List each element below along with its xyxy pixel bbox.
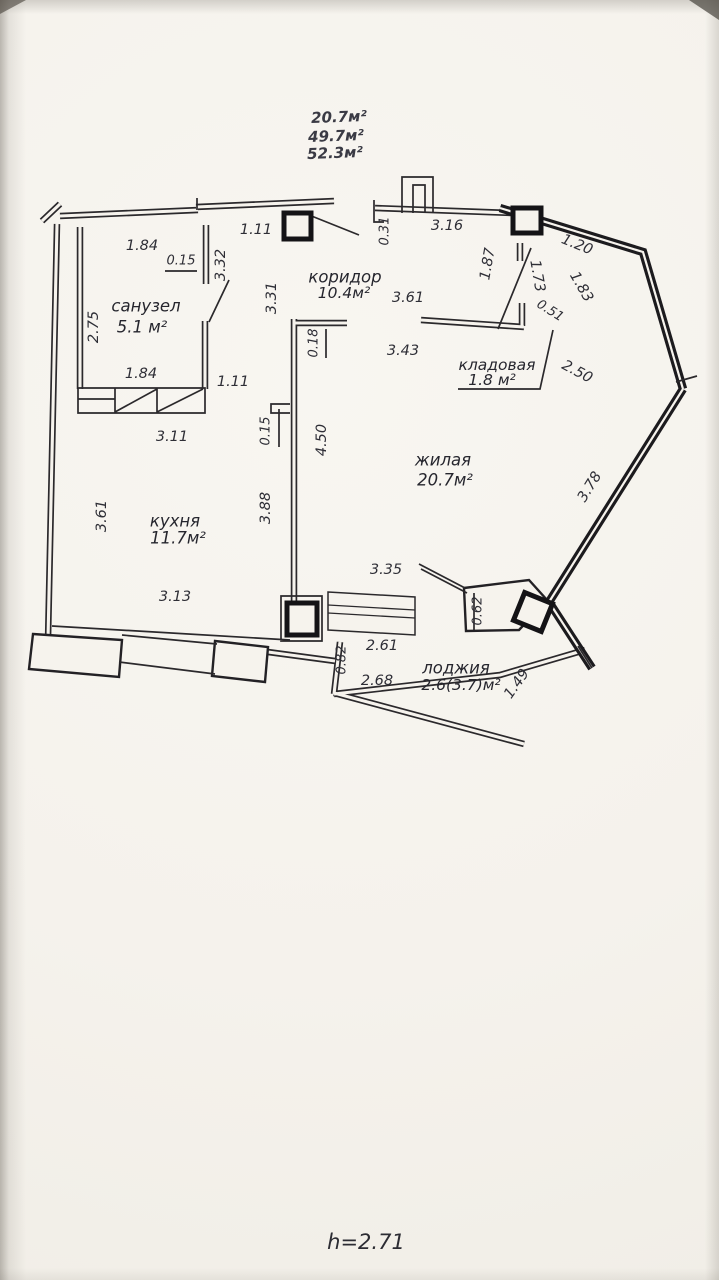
column-entry-left bbox=[284, 213, 311, 239]
dim-living-wall-height: 4.50 bbox=[314, 424, 330, 456]
room-area-corridor: 10.4м² bbox=[318, 284, 370, 302]
ceiling-height-note: h=2.71 bbox=[327, 1230, 405, 1254]
dim-corridor-height: 3.31 bbox=[264, 282, 280, 314]
dim-kitchen-left-height: 3.61 bbox=[94, 500, 110, 532]
floorplan-walls bbox=[29, 177, 697, 744]
room-area-living: 20.7м² bbox=[417, 471, 473, 490]
dim-loggia-window-width: 2.61 bbox=[366, 638, 398, 654]
room-label-bathroom: санузел bbox=[111, 297, 181, 316]
dim-living-right-height: 3.78 bbox=[575, 469, 606, 505]
summary-line-3: 52.3м² bbox=[307, 143, 364, 163]
dim-bath-top-width: 1.84 bbox=[126, 238, 158, 254]
dim-loggia-pier-width: 0.62 bbox=[471, 597, 486, 626]
dim-kitchen-right-height: 3.88 bbox=[258, 492, 274, 524]
dim-bath-left-height: 2.75 bbox=[86, 311, 102, 343]
column-kitchen-corner bbox=[287, 603, 317, 635]
dim-closet-door-width: 0.51 bbox=[534, 297, 567, 325]
scan-corner-shadow-left bbox=[0, 0, 26, 14]
room-area-closet: 1.8 м² bbox=[468, 371, 515, 389]
dim-loggia-bottom-width: 2.68 bbox=[361, 673, 393, 689]
dim-closet-top-width: 3.61 bbox=[392, 290, 424, 306]
dim-living-top-width: 3.43 bbox=[387, 343, 419, 359]
room-area-bathroom: 5.1 м² bbox=[117, 318, 168, 337]
dim-wall-right-4: 2.50 bbox=[559, 357, 595, 386]
dim-bath-right-height: 3.32 bbox=[213, 249, 229, 281]
dim-bath-bottom-width: 1.84 bbox=[125, 366, 157, 382]
dim-living-bottom-width: 3.35 bbox=[370, 562, 402, 578]
dim-entry-top-opening: 1.11 bbox=[240, 222, 272, 238]
dim-kitchen-bottom-width: 3.13 bbox=[159, 589, 191, 605]
floor-plan-svg: 20.7м² 49.7м² 52.3м² санузел 5.1 м² кори… bbox=[0, 0, 719, 1280]
dim-kitchen-pass-opening: 1.11 bbox=[217, 374, 249, 390]
summary-line-1: 20.7м² bbox=[311, 107, 368, 127]
dim-central-wall-offset-top: 0.18 bbox=[307, 329, 322, 358]
room-area-loggia: 2.6(3.7)м² bbox=[421, 676, 500, 694]
room-area-kitchen: 11.7м² bbox=[150, 529, 206, 548]
dim-loggia-left-depth: 0.82 bbox=[335, 646, 350, 675]
dim-kitchen-top-width: 3.11 bbox=[156, 429, 188, 445]
dim-wall-right-2: 1.73 bbox=[526, 259, 547, 294]
floorplan-texts: 20.7м² 49.7м² 52.3м² санузел 5.1 м² кори… bbox=[86, 107, 605, 1254]
dim-wall-right-3: 1.83 bbox=[566, 269, 596, 305]
room-label-living: жилая bbox=[414, 451, 471, 470]
scanned-floorplan-page: 20.7м² 49.7м² 52.3м² санузел 5.1 м² кори… bbox=[0, 0, 719, 1280]
column-entry-right bbox=[513, 208, 541, 233]
room-label-loggia: лоджия bbox=[421, 659, 490, 678]
dim-hall-top-width: 3.16 bbox=[431, 218, 463, 234]
dim-bath-top-offset: 0.15 bbox=[167, 254, 196, 269]
scan-corner-shadow-right bbox=[689, 0, 719, 20]
dim-entry-door-width: 1.87 bbox=[477, 246, 498, 281]
dim-central-wall-offset-mid: 0.15 bbox=[259, 417, 274, 446]
dim-hall-vent-offset: 0.31 bbox=[378, 217, 393, 246]
